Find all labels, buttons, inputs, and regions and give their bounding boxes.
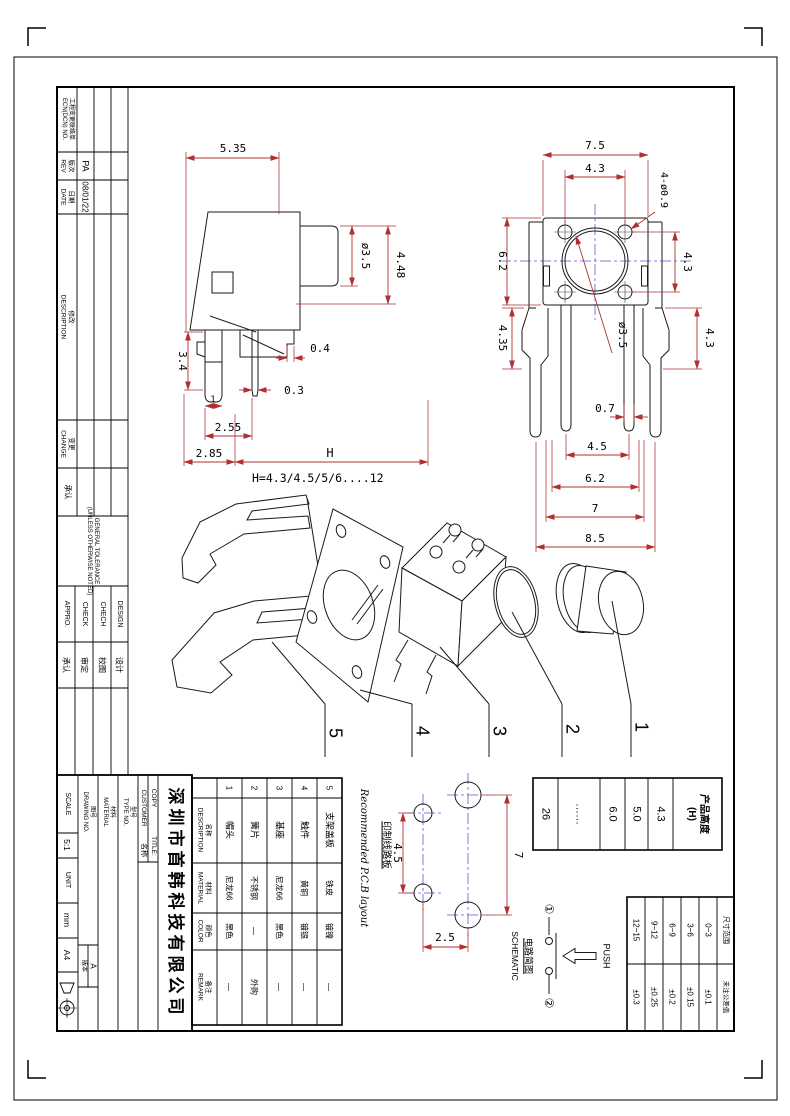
name-cn-label: 名称 [139, 843, 147, 857]
parts-mat-header: 材料MATERIAL [196, 872, 211, 904]
appro-cn: 承认 [61, 657, 70, 673]
rev-value: PA [80, 160, 91, 171]
part-remark: — [324, 983, 333, 991]
part-material: 尼龙66 [274, 876, 283, 901]
tol-value-header: 未注公差值 [721, 981, 729, 1014]
scale-value: 5:1 [62, 839, 72, 851]
change-label: 变更CHANGE [59, 430, 74, 458]
part-material: 尼龙66 [224, 876, 233, 901]
check-cn: 审定 [79, 657, 88, 673]
corner-mark-tl [28, 28, 46, 46]
dim-h: H [326, 446, 333, 460]
schematic-pin1: ① [542, 904, 556, 915]
check-label: CHECK [80, 602, 88, 627]
title-label: TITLE: [149, 836, 157, 856]
part-material: 黄铜 [299, 880, 308, 896]
copy-label: COPY [149, 789, 157, 807]
chech-label: CHECH [98, 602, 106, 627]
type-no-label: 型号TYPE NO. [121, 798, 135, 826]
dim-62b: 6.2 [585, 472, 605, 485]
unit-label: UNIT [63, 872, 71, 888]
dim-62: 6.2 [496, 251, 509, 271]
part-cover-plate [296, 509, 403, 702]
dim-43b: 4.3 [681, 252, 694, 272]
dim-pin: 0.3 [284, 384, 304, 397]
part-color: 黑色 [224, 923, 233, 939]
exploded-number-3: 3 [488, 726, 509, 736]
design-label: DESIGN [115, 601, 123, 628]
chech-cn: 校图 [97, 657, 106, 673]
company-name: 深圳市首韩科技有限公司 [165, 788, 185, 1019]
dim-pcb-25: 2.5 [435, 931, 455, 944]
dim-255: 2.55 [215, 421, 242, 434]
part-name: 簧片 [249, 821, 260, 839]
unit-value: mm [62, 913, 72, 927]
dim-holes: 4-ø0.9 [658, 172, 669, 208]
height-value: 4.3 [654, 806, 667, 821]
pcb-layout: 4.5 7 2.5 [391, 773, 525, 952]
schematic-symbol [546, 917, 597, 994]
exploded-number-2: 2 [561, 724, 582, 734]
height-value: 26 [539, 808, 552, 820]
tolerance-table-grid [627, 897, 734, 1031]
part-no: 4 [299, 786, 308, 790]
description-label: 修改DESCRIPTION [59, 295, 74, 339]
dim-stem-dia: ø3.5 [359, 243, 372, 270]
schematic-pin2: ② [542, 998, 556, 1009]
parts-name-header: 名称DESCRIPTION [196, 808, 211, 852]
top-view: 7.5 4.3 4-ø0.9 6.2 4.3 ø3.5 4.35 4.3 0.7… [496, 139, 716, 552]
dim-43c: 4.3 [703, 328, 716, 348]
dim-side-width: 5.35 [220, 142, 247, 155]
date-label: 日期DATE [59, 189, 74, 206]
tol-value: ±0.25 [649, 987, 658, 1007]
tol-value: ±0.3 [631, 989, 640, 1005]
tol-range-header: 尺寸范围 [721, 916, 729, 944]
dim-448: 4.48 [394, 252, 407, 279]
dim-43a: 4.3 [585, 162, 605, 175]
push-label: PUSH [601, 943, 612, 968]
height-value: 5.0 [630, 806, 643, 821]
schematic-label-en: SCHEMATIC [510, 931, 520, 980]
parts-table-grid [192, 778, 342, 1025]
version-label: 版本 [79, 960, 86, 972]
part-remark: — [274, 983, 283, 991]
date-value: 08/01/22 [80, 181, 89, 212]
appro-label: APPRO. [62, 601, 70, 627]
projection-symbol-icon [57, 983, 77, 1018]
tol-value: ±0.2 [667, 989, 676, 1005]
dim-foot: 1 [210, 395, 215, 405]
push-arrow-icon [563, 949, 596, 964]
drawing-no-label: 图号DRAWING NO. [81, 791, 95, 832]
scale-label: SCALE [63, 793, 71, 816]
parts-remark-header: 备注REMARK [196, 973, 211, 1001]
schematic-label-cn: 电路简图 [523, 938, 534, 974]
height-table-header: 产品高度(H) [685, 794, 709, 834]
dim-pcb-45: 4.5 [391, 843, 404, 863]
corner-mark-br [744, 1060, 762, 1078]
part-material: 不锈钢 [249, 876, 258, 900]
dim-btn: ø3.5 [616, 322, 629, 349]
tol-range: 0~3 [703, 923, 712, 937]
dim-435: 4.35 [496, 325, 509, 352]
pcb-label-en: Recommended P.C.B layout [357, 789, 369, 927]
dim-85: 8.5 [585, 532, 605, 545]
rev-label: 版次REV [59, 159, 74, 172]
exploded-view [172, 495, 649, 757]
material-label: 材料MATERIAL [101, 797, 115, 827]
general-tolerance-note: GENERAL TOLERANCE(UNLESS OTHERWISE NOTED… [85, 507, 99, 596]
part-color: 镀银 [299, 923, 308, 939]
exploded-number-1: 1 [630, 722, 651, 732]
approve-label: 承认 [63, 485, 72, 500]
part-bracket-upper-arm [182, 495, 310, 583]
exploded-number-5: 5 [324, 728, 345, 738]
part-no: 1 [224, 786, 233, 790]
part-color: 黑色 [274, 923, 283, 939]
part-material: 铁皮 [324, 880, 333, 896]
tol-range: 12~15 [631, 919, 640, 941]
height-value: …… [573, 803, 586, 825]
part-color: — [249, 927, 258, 935]
part-no: 5 [324, 786, 333, 790]
part-remark: — [299, 983, 308, 991]
exploded-number-4: 4 [411, 726, 432, 736]
tol-range: 6~9 [667, 923, 676, 937]
dim-07: 0.7 [595, 402, 615, 415]
corner-mark-bl [28, 1060, 46, 1078]
drawing-linework: 5.35 ø3.5 4.48 3.4 0.4 0.3 1 2.55 2.85 H… [0, 0, 790, 1116]
dim-285: 2.85 [196, 447, 223, 460]
tol-range: 3~6 [685, 923, 694, 937]
part-name: 触件 [299, 821, 310, 839]
dim-step: 0.4 [310, 342, 330, 355]
design-cn: 设计 [114, 657, 123, 673]
dim-45: 4.5 [587, 440, 607, 453]
part-name: 支架盖板 [324, 812, 335, 848]
dim-pcb-7: 7 [512, 852, 525, 859]
height-note: H=4.3/4.5/5/6....12 [252, 471, 384, 485]
pcb-label-cn: 印制线路板 [380, 821, 391, 869]
tol-range: 9~12 [649, 921, 658, 939]
part-name: 基座 [274, 821, 285, 839]
part-no: 3 [274, 786, 283, 790]
part-name: 帽头 [224, 821, 235, 839]
part-color: 镀镍 [324, 923, 333, 939]
paper-size: A4 [62, 950, 72, 960]
height-value: 6.0 [606, 806, 619, 821]
tol-value: ±0.1 [703, 989, 712, 1005]
customer-label: CUSTOMER [139, 789, 147, 826]
part-no: 2 [249, 786, 258, 790]
corner-mark-tr [744, 28, 762, 46]
dim-7: 7 [592, 502, 599, 515]
parts-color-header: 颜色COLOR [196, 919, 211, 942]
dim-75: 7.5 [585, 139, 605, 152]
version-value: A [88, 963, 97, 968]
tol-value: ±0.15 [685, 987, 694, 1007]
part-remark: 外购 [249, 979, 258, 995]
dim-leg: 3.4 [176, 351, 189, 371]
ecn-header: 工程变更联络单ECN(DCN) NO. [60, 98, 74, 140]
drawing-sheet: 5.35 ø3.5 4.48 3.4 0.4 0.3 1 2.55 2.85 H… [0, 0, 790, 1116]
side-view: 5.35 ø3.5 4.48 3.4 0.4 0.3 1 2.55 2.85 H… [176, 142, 428, 485]
part-remark: — [224, 983, 233, 991]
